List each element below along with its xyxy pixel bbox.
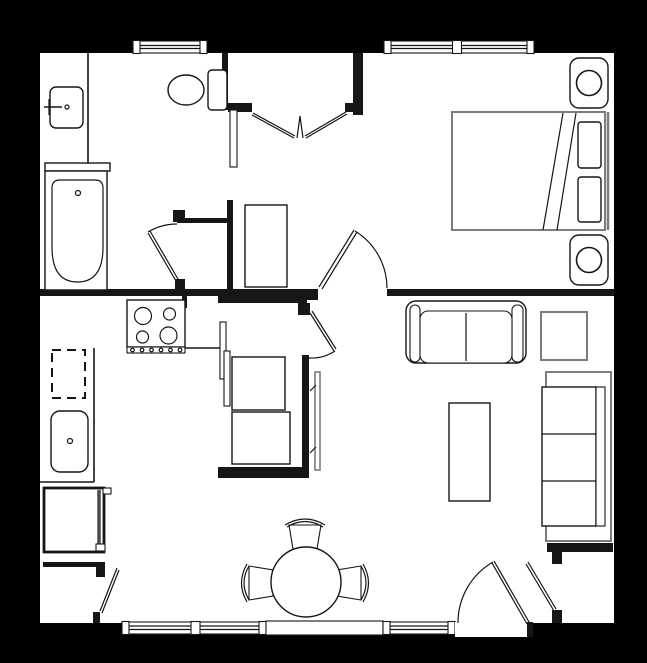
pillow [578, 122, 601, 168]
wall-storage-closet-top [43, 562, 105, 567]
chair-seat [249, 566, 273, 600]
wall-entry-closet-jamb-top [552, 552, 562, 564]
wall-storage-closet-jamb-top [96, 567, 105, 577]
wall-laundry-right [302, 355, 309, 478]
armrest [512, 305, 523, 362]
wall-entry-closet-jamb-bottom [552, 610, 562, 623]
wall-bathdoor-stop-top [173, 210, 185, 222]
bathroom-pocket-door-panel [230, 110, 237, 167]
wall-closet-right-jamb [345, 103, 363, 112]
toilet-tank [208, 70, 227, 110]
window-bathroom-top [133, 41, 207, 54]
range-cooktop [127, 300, 185, 353]
window-living-bottom [383, 622, 455, 635]
wall-bedroom-south [387, 289, 614, 296]
sofa-back [596, 387, 605, 526]
pillow [578, 177, 601, 222]
entry-door-opening [455, 622, 533, 637]
armrest [410, 305, 420, 362]
loveseat [406, 301, 526, 363]
wall-bathdoor-stop-bottom [175, 279, 185, 290]
fixed-panel-bottom [266, 621, 383, 635]
toilet-bowl [168, 75, 204, 105]
wall-entry-closet-top [547, 543, 613, 552]
nightstand-with-lamp [570, 235, 608, 285]
window-dining-bottom [122, 622, 266, 635]
knob-strip [127, 347, 185, 353]
storage-shelf [245, 205, 287, 287]
vanity-ledge [45, 163, 110, 171]
bathtub [45, 171, 107, 290]
wall-laundry-bottom [218, 467, 309, 478]
wall-bath-alcove-side [227, 223, 233, 290]
bathroom-sink [44, 87, 83, 128]
wall-laundry-door-jamb [298, 303, 310, 315]
nightstand-with-lamp [570, 58, 608, 108]
kitchen-sink [51, 411, 88, 472]
floor-plan-page [0, 0, 647, 663]
sofa-cushions [542, 387, 596, 526]
window-bedroom-top [384, 41, 534, 54]
dining-table [271, 547, 341, 617]
chair-seat [289, 525, 321, 549]
floor-area [40, 53, 614, 623]
coffee-table [449, 403, 490, 501]
wall-storage-closet-jamb-bottom [93, 612, 100, 623]
wall-bath-alcove-top [177, 218, 233, 223]
wall-hall-stub [227, 200, 233, 218]
floor-plan-drawing [0, 0, 647, 663]
washer [232, 357, 285, 410]
fridge-handle [103, 488, 111, 494]
dryer [232, 412, 290, 464]
wall-laundry-top [218, 296, 307, 303]
sofa [542, 372, 611, 541]
refrigerator [44, 488, 111, 552]
sliding-door-panel [224, 351, 230, 406]
